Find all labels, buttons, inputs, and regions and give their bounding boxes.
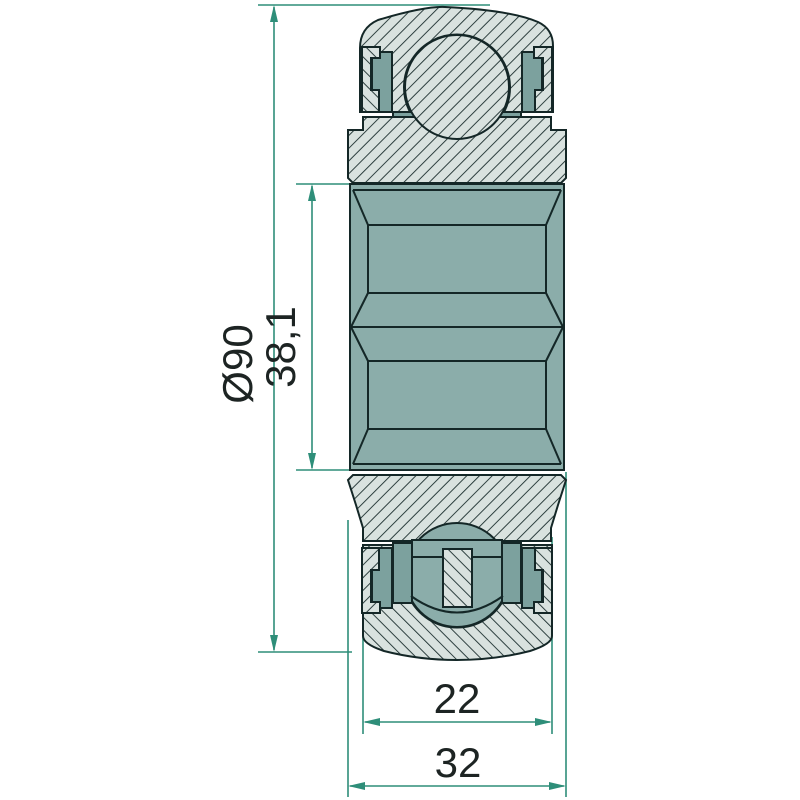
seal-top-right (522, 47, 552, 112)
arrowhead-left (348, 782, 365, 790)
arrowhead-right (549, 782, 566, 790)
arrowhead-down (308, 453, 316, 470)
arrowhead-up (308, 184, 316, 201)
arrowhead-up (270, 5, 278, 22)
arrowhead-left (363, 718, 380, 726)
label-bore: 38,1 (257, 306, 304, 388)
inner-sleeve (350, 184, 564, 470)
arrowhead-down (270, 635, 278, 652)
seal-top-left (362, 47, 392, 112)
label-outer-ring-width: 22 (434, 675, 481, 722)
label-total-width: 32 (435, 739, 482, 786)
cage-bar-section (443, 549, 472, 607)
bearing-technical-drawing: Ø90 38,1 22 32 (0, 0, 800, 800)
cage-bottom (393, 540, 521, 613)
seal-bottom-left (362, 548, 392, 613)
arrowhead-right (535, 718, 552, 726)
ball-top-section (405, 35, 509, 139)
seal-bottom-right (522, 548, 552, 613)
bearing-technical-drawing-page: Ø90 38,1 22 32 (0, 0, 800, 800)
label-outer-diameter: Ø90 (214, 324, 261, 403)
